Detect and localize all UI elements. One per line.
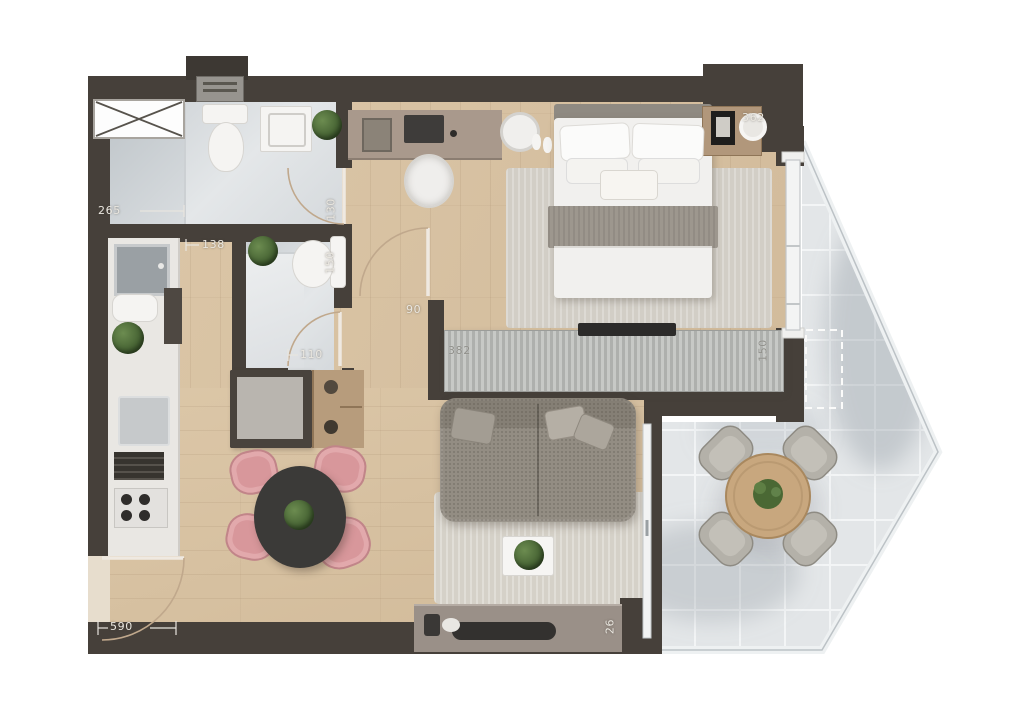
dim-label-bath1-wall: 130: [325, 195, 338, 225]
dim-label-bedroom-width: 362: [742, 111, 765, 124]
dim-label-hall-width: 138: [202, 238, 225, 251]
floor-plan-canvas: 265 130 150 138 110 90 382 150 362 590 2…: [0, 0, 1024, 717]
dim-label-sideboard: 26: [604, 612, 617, 642]
plan-overlay: [0, 0, 1024, 717]
dim-label-bath1-width: 265: [98, 204, 121, 217]
dim-label-living-length: 590: [110, 620, 133, 633]
dimension-ticks: [98, 205, 298, 635]
dim-label-bedroom-opening: 90: [406, 303, 421, 316]
dim-label-divider-length: 382: [448, 344, 471, 357]
dim-label-bath2-height: 150: [324, 248, 337, 278]
dim-label-bath2-door: 110: [300, 348, 323, 361]
dim-label-divider-end: 150: [757, 336, 770, 366]
door-arc-bedroom: [360, 228, 428, 296]
